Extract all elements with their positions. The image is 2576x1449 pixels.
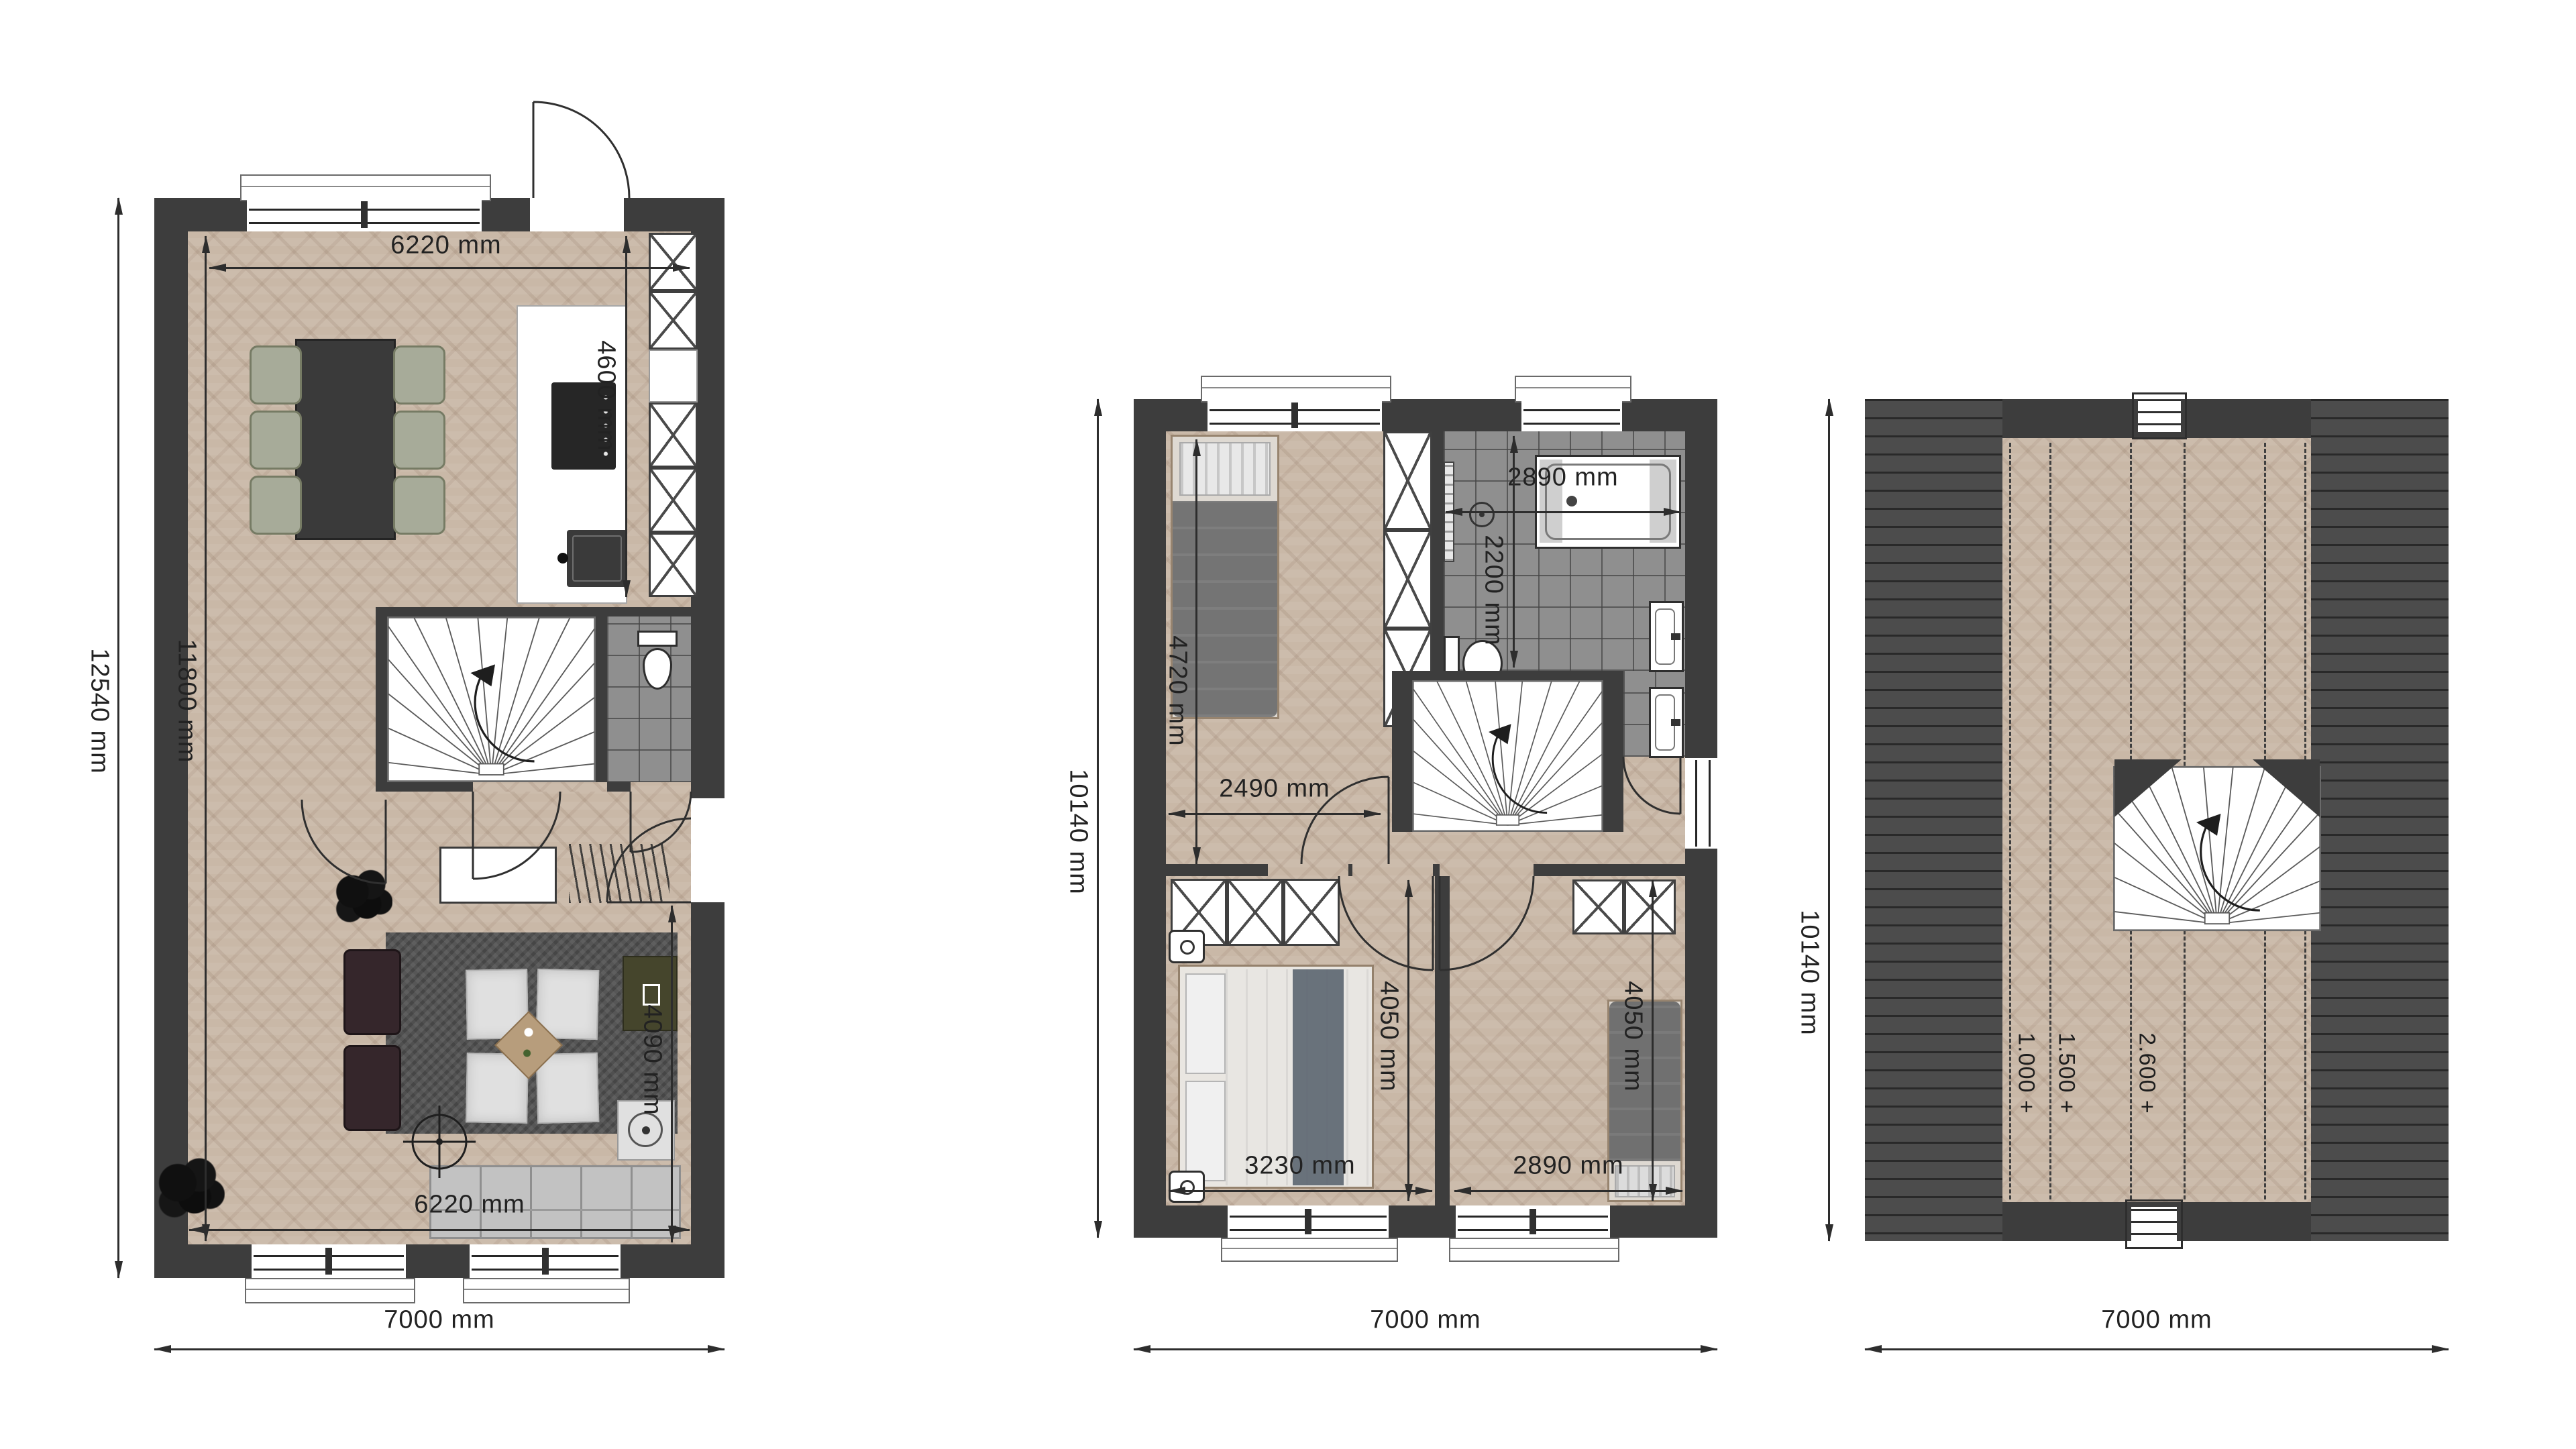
landing-wall [1433, 864, 1440, 876]
dim-label: 12540 mm [85, 648, 114, 774]
height-contour-line [2184, 443, 2186, 1199]
exterior-wall-left [1134, 399, 1166, 1238]
dim-label: 4600 mm [592, 340, 621, 451]
dim-line-bedroom1-width [1169, 813, 1381, 815]
window [1521, 399, 1622, 431]
window-sill [1201, 376, 1391, 402]
roof-slope-right [2311, 399, 2449, 1241]
chimney [2125, 1199, 2183, 1249]
dim-line-living-depth [671, 906, 673, 1242]
dim-label: 6220 mm [390, 231, 501, 260]
dim-label: 4050 mm [1375, 981, 1403, 1091]
dining-chair [393, 476, 445, 535]
coat-rack-icon [569, 844, 669, 903]
height-contour-label: 2.600 + [2134, 1032, 2160, 1114]
dim-label: 7000 mm [2101, 1306, 2212, 1335]
staircase-enclosure [376, 607, 607, 792]
dim-line-top-width [209, 267, 690, 269]
landing-wall [1534, 864, 1685, 876]
wardrobe-x-cell [649, 233, 698, 291]
toilet-room-wall-bottom [607, 782, 631, 792]
bathtub-faucet-icon [1566, 496, 1577, 506]
speaker-icon [1169, 930, 1205, 963]
wardrobe-x-cell [649, 402, 698, 468]
dim-label: 2890 mm [1513, 1152, 1623, 1181]
floor-plans-page: 6220 mm 4600 mm 11800 mm 12540 mm 4090 m… [0, 0, 2576, 1449]
height-contour-line [2009, 443, 2011, 1199]
window-sill [463, 1278, 630, 1303]
roof-slope-left [1865, 399, 2002, 1241]
sink-basin [572, 535, 622, 582]
staircase-enclosure [1392, 671, 1623, 832]
bed-pillow [1185, 973, 1226, 1074]
armchair [343, 949, 401, 1035]
exterior-wall-bottom [1134, 1205, 1717, 1238]
dim-line-bottom-width [189, 1229, 690, 1231]
wardrobe-x-cell [1383, 530, 1432, 629]
wardrobe-x-cell [1572, 879, 1624, 934]
dim-label: 2890 mm [1507, 464, 1618, 492]
dim-line-exterior-length [1097, 399, 1099, 1238]
kitchen-counter [649, 350, 698, 402]
dim-line-exterior-length [1828, 399, 1830, 1241]
dim-line-bedroom2-depth [1652, 880, 1654, 1201]
wardrobe-x-cell [649, 468, 698, 533]
chimney [2132, 392, 2187, 439]
dim-line-interior-length [205, 236, 207, 1241]
dim-label: 10140 mm [1795, 910, 1824, 1036]
dining-table [295, 339, 396, 540]
landing-wall [1166, 864, 1268, 876]
plant [158, 1157, 225, 1221]
dim-label: 2490 mm [1219, 775, 1330, 804]
bed-pillow [1185, 1081, 1226, 1181]
entry-door-opening [530, 198, 624, 231]
window-sill [240, 174, 491, 201]
window-sill [1515, 376, 1631, 402]
floor-cushion [536, 1053, 600, 1124]
dim-label: 11800 mm [172, 639, 201, 763]
wardrobe-x-cell [1383, 431, 1432, 530]
dim-line-bathroom-depth [1513, 436, 1515, 667]
dim-label: 7000 mm [384, 1306, 494, 1335]
wardrobe-x-cell [1227, 879, 1283, 946]
dining-chair [250, 411, 302, 470]
armchair [343, 1045, 401, 1131]
dim-line-kitchen-depth [625, 236, 627, 597]
tv-remote-icon [643, 984, 660, 1006]
height-contour-label: 1.500 + [2053, 1032, 2080, 1114]
dim-label: 3230 mm [1244, 1152, 1355, 1181]
dim-line-bedroom2-width [1454, 1190, 1682, 1192]
bathroom-partition-wall [1432, 431, 1444, 704]
shower-drain-icon [1469, 502, 1495, 527]
dining-chair [393, 345, 445, 405]
dim-line-bedroom1-depth [1195, 439, 1197, 864]
sink-icon [1649, 687, 1684, 758]
dim-label: 7000 mm [1370, 1306, 1481, 1335]
dim-line-exterior-length [117, 198, 119, 1278]
dim-line-master-width [1169, 1190, 1432, 1192]
dim-label: 2200 mm [1479, 535, 1508, 645]
window [1228, 1205, 1389, 1238]
entry-door-swing [533, 102, 629, 198]
toilet-room-wall-top [607, 607, 691, 616]
wardrobe-x-cell [1283, 879, 1340, 946]
stair-opening-patch [473, 782, 607, 792]
wardrobe-x-cell [649, 533, 698, 597]
dim-line-exterior-width [1134, 1348, 1717, 1350]
sink-icon [1649, 601, 1684, 672]
dim-line-master-depth [1407, 880, 1409, 1201]
dining-chair [250, 345, 302, 405]
faucet-icon [1671, 633, 1680, 640]
dining-chair [393, 411, 445, 470]
lamp-center-dot [642, 1126, 650, 1134]
window [1456, 1205, 1610, 1238]
exterior-wall-bottom [154, 1244, 724, 1278]
dining-chair [250, 476, 302, 535]
window-sill [1449, 1238, 1619, 1262]
window-sill [245, 1278, 415, 1303]
window [247, 198, 482, 231]
landing-wall [1348, 864, 1352, 876]
dim-line-exterior-width [1865, 1348, 2449, 1350]
height-contour-line [2130, 443, 2132, 1199]
window [252, 1244, 406, 1278]
faucet-icon [557, 553, 568, 563]
window [470, 1244, 621, 1278]
speaker-ring [1180, 940, 1195, 955]
height-contour-line [2049, 443, 2051, 1199]
height-contour-line [2264, 443, 2266, 1199]
height-contour-line [2304, 443, 2306, 1199]
toilet-icon [637, 631, 678, 647]
faucet-icon [1671, 719, 1680, 726]
window-sill [1221, 1238, 1398, 1262]
bedroom-divider-wall [1435, 876, 1450, 1205]
wardrobe-x-cell [649, 291, 698, 350]
back-door-opening [691, 798, 724, 902]
window [1207, 399, 1382, 431]
plant [335, 869, 392, 926]
dim-line-exterior-width [154, 1348, 724, 1350]
height-contour-label: 1.000 + [2013, 1032, 2039, 1114]
window [1685, 758, 1717, 849]
hall-closet [439, 847, 557, 904]
dim-label: 6220 mm [414, 1191, 525, 1220]
dim-line-bathroom-width [1446, 511, 1680, 513]
kitchen-sink-icon [567, 530, 627, 587]
dim-label: 4050 mm [1619, 981, 1648, 1091]
dim-label: 4720 mm [1163, 635, 1192, 746]
dim-label: 4090 mm [638, 1004, 667, 1115]
dim-label: 10140 mm [1064, 769, 1093, 895]
